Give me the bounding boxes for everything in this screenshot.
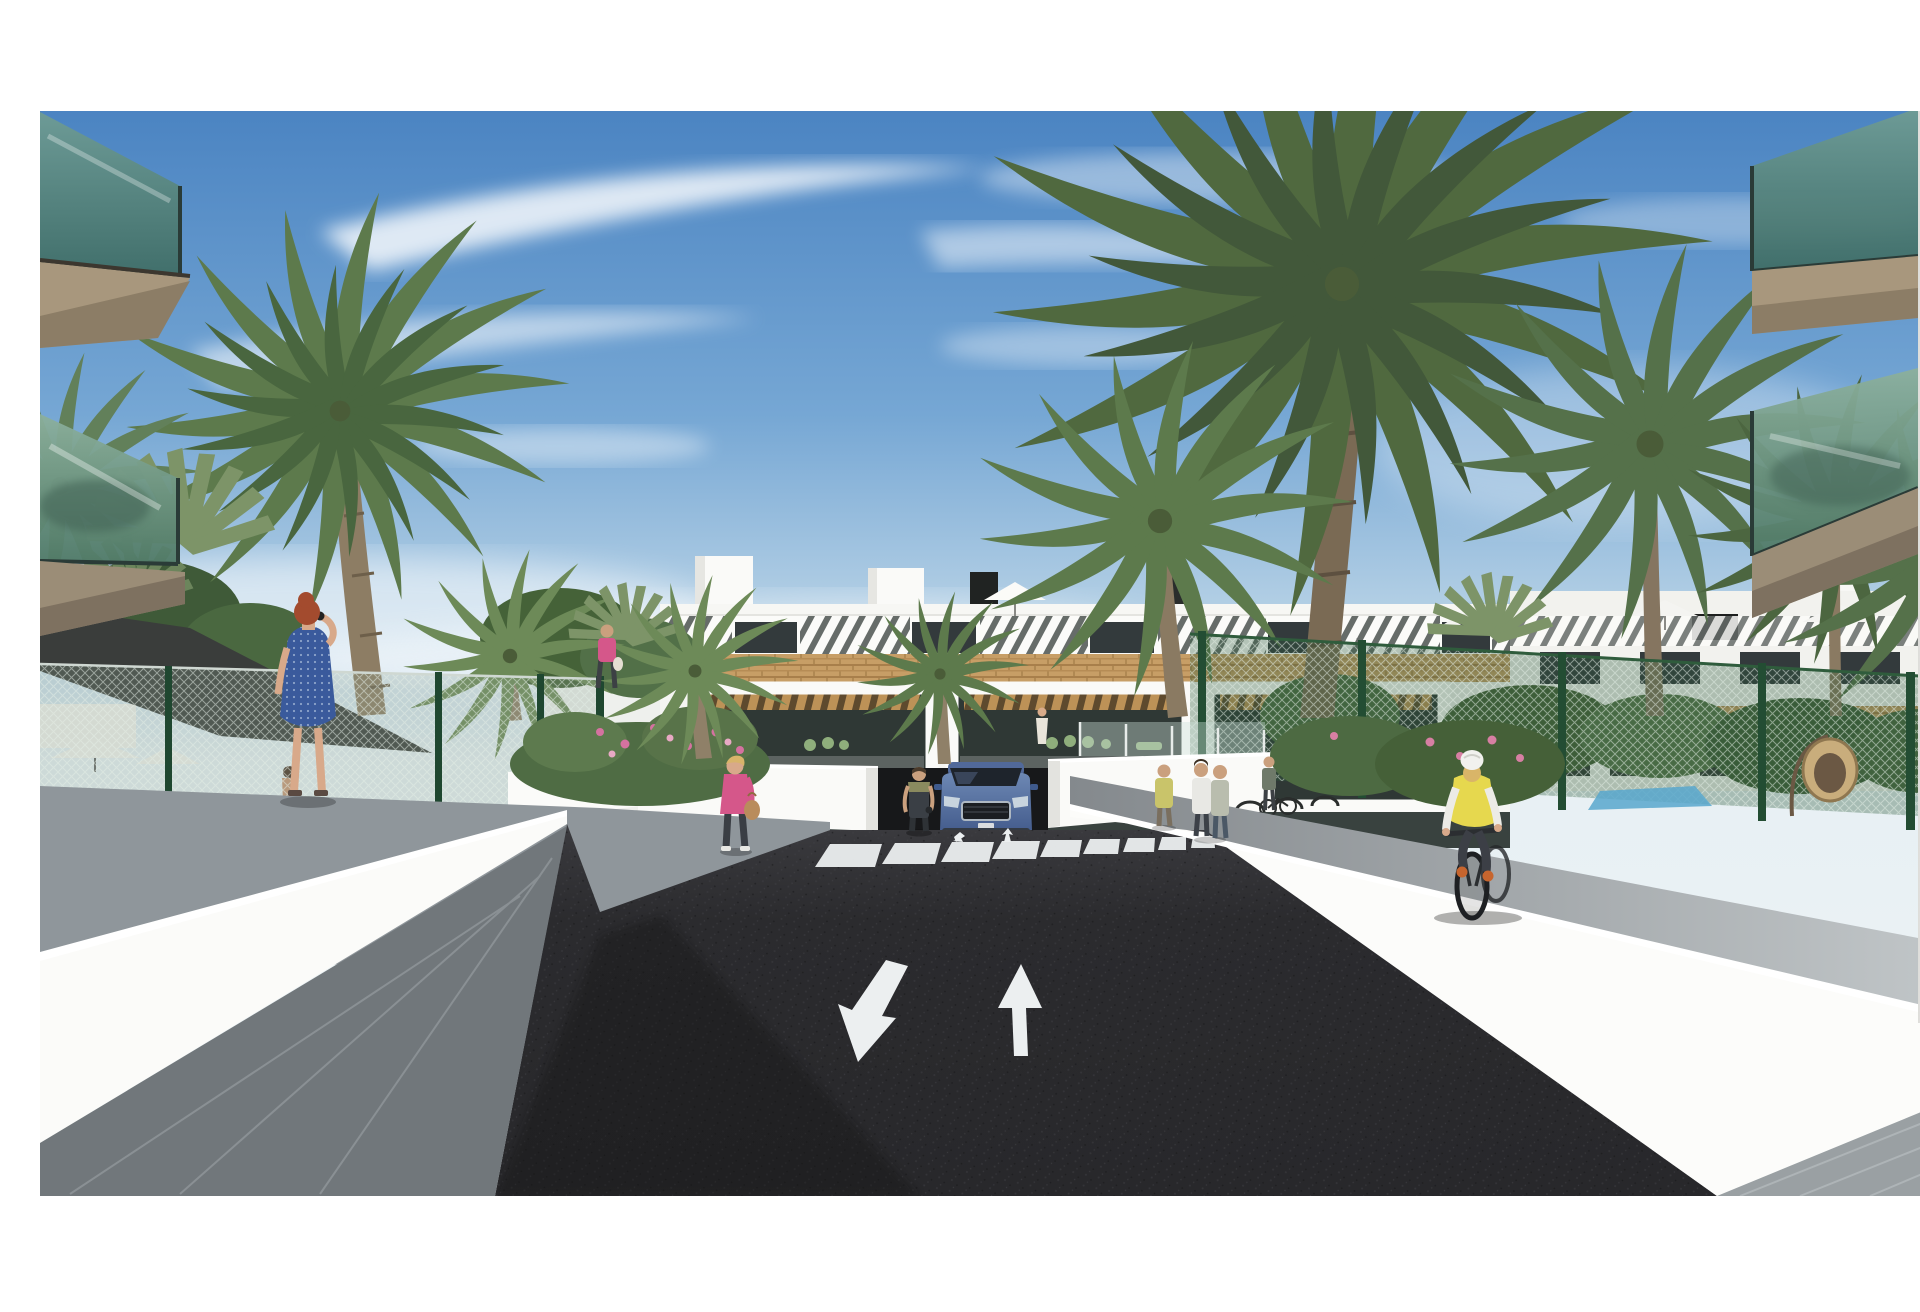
scene-canvas: New-build apartment complex — street ren… bbox=[40, 16, 1920, 1296]
rendering-scene: Architectural 3D visualization: palm-lin… bbox=[40, 16, 1920, 1296]
terrace-figure bbox=[1036, 708, 1048, 745]
